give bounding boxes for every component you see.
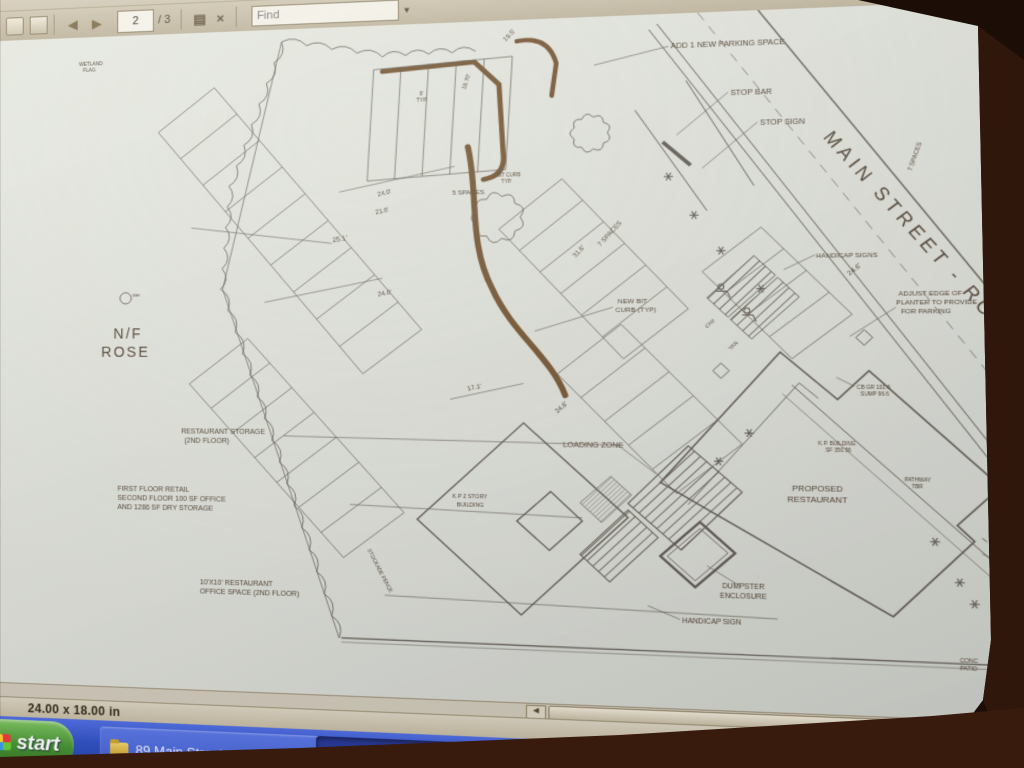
plan-label: BUILDING: [457, 502, 484, 509]
plan-label: MH: [133, 293, 140, 298]
open-icon[interactable]: [6, 17, 24, 36]
taskbar-button-label: 89 Main Street: [136, 742, 223, 761]
next-page-icon[interactable]: ▶: [92, 16, 102, 30]
plan-label: RESTAURANT: [787, 494, 848, 505]
plan-label: LOADING ZONE: [563, 441, 624, 449]
plan-label: 24.0': [377, 189, 392, 198]
find-dropdown-icon[interactable]: ▼: [402, 5, 411, 15]
plan-label: PROPOSED: [792, 483, 844, 494]
taskbar-button-label: 89 Main Street, Parki...: [349, 751, 494, 768]
previous-page-icon[interactable]: ◀: [68, 17, 78, 31]
plan-label: TYP.: [501, 179, 512, 185]
plan-label: ADJUST EDGE OF: [898, 291, 962, 298]
plan-label: TYP.: [416, 97, 427, 104]
plan-label: STOP SIGN: [760, 118, 805, 127]
plan-label: CAR: [704, 317, 717, 329]
plan-label: 10'X10' RESTAURANT: [200, 579, 273, 588]
plan-label: NEW BIT: [618, 298, 648, 306]
plan-label: CONC: [960, 658, 979, 665]
projected-desktop: – □ ✕ Secure ▼ Sign: [0, 0, 1024, 768]
plan-label: 7 SPACES: [597, 220, 624, 248]
plan-label: FIRST FLOOR RETAIL: [117, 485, 189, 493]
pdf-icon: [327, 750, 342, 767]
plan-label: ROSE: [101, 344, 150, 360]
plan-label: OFFICE SPACE (2ND FLOOR): [200, 588, 299, 598]
plan-label: MAIN STREET - ROUTE 25: [819, 127, 1024, 393]
plan-label: HANDICAP SIGNS: [816, 253, 878, 260]
plan-label: 18.70': [461, 74, 472, 91]
site-plan-drawing: ADD 1 NEW PARKING SPACESTOP BARSTOP SIGN…: [0, 0, 1024, 732]
plan-label: N/F: [113, 326, 142, 342]
plan-label: SUMP 96.6: [861, 391, 890, 397]
plan-label: K.P 2 STORY: [452, 493, 488, 500]
plan-label: SF 350.56: [826, 447, 852, 453]
plan-label: RESTAURANT STORAGE: [181, 428, 265, 436]
taskbar-button-folder[interactable]: 89 Main Street: [100, 726, 325, 768]
plan-label: PATHWAY: [904, 477, 930, 483]
pdf-document-area: ADD 1 NEW PARKING SPACESTOP BARSTOP SIGN…: [0, 0, 1024, 732]
page-number-input[interactable]: [117, 9, 154, 33]
plan-label: 17.1': [467, 384, 482, 393]
plan-label: STOCKADE FENCE: [365, 548, 394, 595]
plan-label: (2ND FLOOR): [184, 437, 229, 445]
fit-page-icon[interactable]: ×: [216, 11, 224, 25]
photo-of-projected-screen: – □ ✕ Secure ▼ Sign: [0, 0, 1024, 768]
plan-label: PATIO: [960, 666, 978, 673]
taskbar-button-pdf[interactable]: 89 Main Street, Parki...: [316, 736, 542, 768]
plan-label: FENCE: [1008, 562, 1024, 569]
plan-label: 24.0': [377, 290, 392, 298]
page-total-label: / 3: [158, 14, 171, 27]
plan-label: HANDICAP SIGN: [682, 617, 741, 626]
plan-label: VAN: [727, 340, 739, 351]
page-size-label: 24.00 x 18.00 in: [28, 701, 121, 719]
plan-label: TBR: [912, 483, 924, 489]
windows-flag-icon: [0, 734, 11, 750]
plan-label: STOP BAR: [730, 89, 772, 98]
find-input[interactable]: [252, 0, 399, 27]
plan-label: PLANTER TO PROVIDE: [896, 300, 977, 307]
plan-label: CB GR 101.6: [857, 384, 891, 390]
plan-label: 24.6': [847, 263, 864, 277]
save-icon[interactable]: [30, 16, 48, 35]
plan-label: ADD 1 NEW PARKING SPACE: [671, 39, 785, 51]
plan-label: SECOND FLOOR 100 SF OFFICE: [117, 495, 226, 504]
plan-label: BIT CURB: [497, 172, 521, 178]
plan-label: 24.8': [554, 401, 569, 415]
plan-label: 7 SPACES: [907, 141, 924, 172]
start-label: start: [16, 731, 59, 756]
plan-label: 31.6': [572, 245, 587, 260]
plan-label: 5 SPACES: [452, 190, 484, 197]
folder-icon: [110, 742, 128, 756]
plan-label: 21.6': [375, 207, 390, 216]
plan-label: DUMPSTER: [722, 583, 765, 592]
plan-label: CURB (TYP): [615, 307, 656, 315]
page-view-icon[interactable]: ▤: [193, 12, 206, 26]
plan-label: 9': [419, 91, 423, 97]
plan-label: FLAG: [83, 67, 96, 74]
plan-labels: ADD 1 NEW PARKING SPACESTOP BARSTOP SIGN…: [79, 3, 1024, 679]
plan-label: AND 1286 SF DRY STORAGE: [117, 504, 213, 513]
start-button[interactable]: start: [0, 717, 74, 768]
plan-label: WETLAND: [79, 61, 103, 68]
plan-label: FOR PARKING: [901, 309, 952, 316]
plan-label: K.P. BUILDING: [818, 440, 856, 446]
plan-label: ENCLOSURE: [720, 592, 767, 601]
plan-label: 25.1': [332, 235, 348, 245]
